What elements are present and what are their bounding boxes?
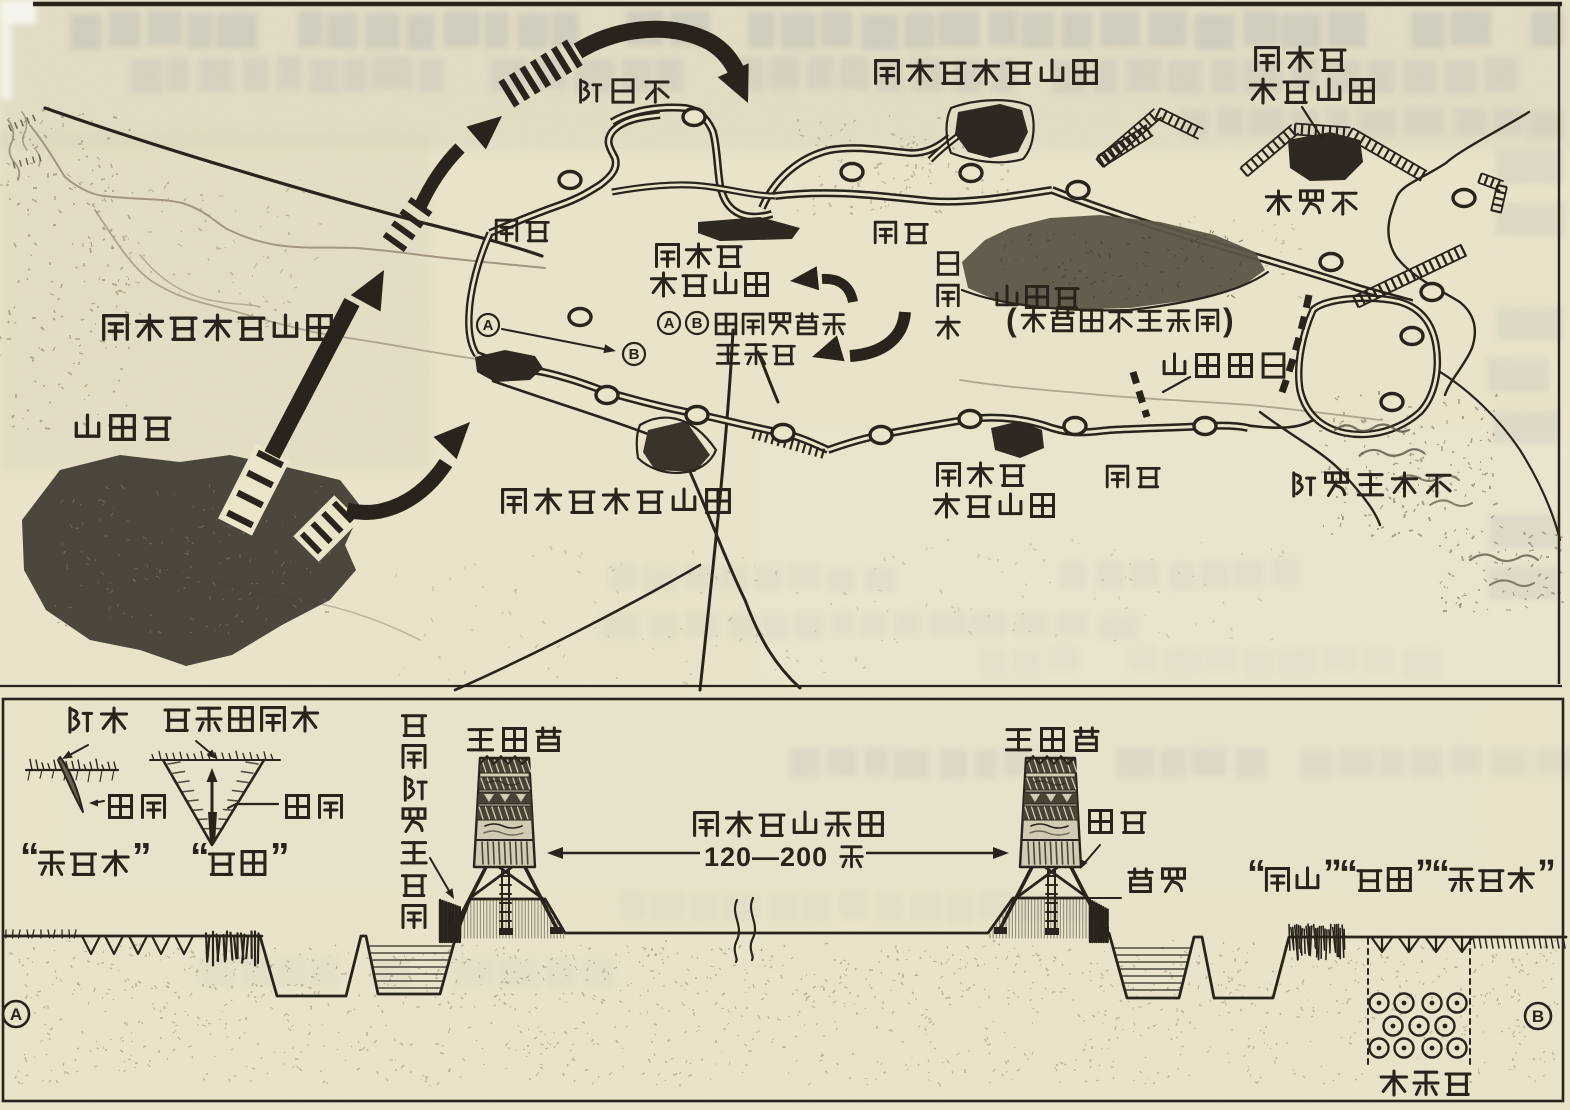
svg-text:): ): [1223, 302, 1234, 338]
svg-text:“: “: [20, 836, 40, 879]
svg-text:B: B: [629, 346, 640, 363]
svg-text:“: “: [1339, 853, 1358, 895]
svg-text:(: (: [1006, 302, 1017, 338]
svg-text:A: A: [483, 317, 494, 334]
svg-text:“: “: [1431, 853, 1450, 895]
svg-text:”: ”: [132, 836, 152, 879]
svg-text:”: ”: [270, 836, 290, 879]
svg-text:”: ”: [1537, 853, 1556, 895]
svg-text:A: A: [664, 315, 675, 332]
svg-text:“: “: [1247, 853, 1266, 895]
svg-text:120—200: 120—200: [704, 842, 828, 872]
svg-text:B: B: [692, 315, 703, 332]
svg-text:B: B: [1532, 1007, 1544, 1026]
svg-text:“: “: [190, 836, 210, 879]
svg-text:A: A: [10, 1005, 22, 1024]
